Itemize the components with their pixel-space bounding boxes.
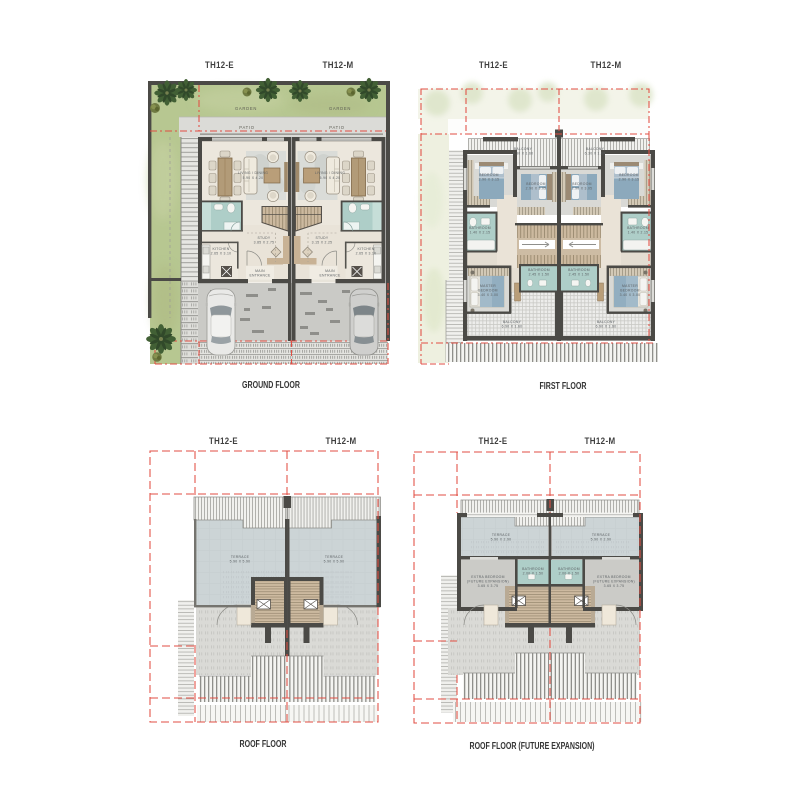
svg-text:2.45 X 1.50: 2.45 X 1.50 [569, 273, 590, 277]
svg-text:2.90 X 3.05: 2.90 X 3.05 [526, 187, 547, 191]
svg-text:TH12-M: TH12-M [585, 436, 616, 446]
svg-text:BEDROOM: BEDROOM [572, 182, 592, 186]
svg-text:LIVING / DINING: LIVING / DINING [315, 171, 345, 175]
svg-text:(FUTURE EXPANSION): (FUTURE EXPANSION) [593, 580, 635, 584]
svg-text:GARDEN: GARDEN [329, 106, 351, 111]
svg-text:1.40 X 2.15: 1.40 X 2.15 [628, 231, 649, 235]
svg-text:KITCHEN: KITCHEN [358, 247, 375, 251]
svg-text:(FUTURE EXPANSION): (FUTURE EXPANSION) [467, 580, 509, 584]
svg-text:ENTRANCE: ENTRANCE [319, 274, 340, 278]
svg-text:STUDY: STUDY [316, 236, 329, 240]
svg-text:PATIO: PATIO [329, 125, 344, 130]
svg-text:5.90 X 4.20: 5.90 X 4.20 [320, 176, 341, 180]
svg-text:MASTER: MASTER [622, 284, 638, 288]
svg-text:TERRACE: TERRACE [492, 533, 511, 537]
svg-text:GROUND FLOOR: GROUND FLOOR [242, 380, 300, 391]
svg-text:2.90 X 3.05: 2.90 X 3.05 [572, 187, 593, 191]
svg-text:GARDEN: GARDEN [235, 106, 257, 111]
svg-text:5.90 X 4.20: 5.90 X 4.20 [243, 176, 264, 180]
svg-text:BALCONY: BALCONY [597, 320, 616, 324]
svg-text:2.00 X 1.50: 2.00 X 1.50 [523, 572, 544, 576]
svg-text:BALCONY: BALCONY [586, 147, 605, 151]
svg-text:BALCONY: BALCONY [514, 147, 533, 151]
svg-text:EXTRA BEDROOM: EXTRA BEDROOM [471, 575, 504, 579]
svg-text:BEDROOM: BEDROOM [526, 182, 546, 186]
svg-text:5.90 X 5.90: 5.90 X 5.90 [324, 560, 345, 564]
svg-text:BEDROOM: BEDROOM [479, 173, 499, 177]
svg-text:5.90 X 5.90: 5.90 X 5.90 [230, 560, 251, 564]
svg-text:MAIN: MAIN [255, 269, 265, 273]
svg-text:BATHROOM: BATHROOM [528, 268, 550, 272]
svg-text:FIRST FLOOR: FIRST FLOOR [540, 381, 587, 392]
svg-text:6.30 X 1.60: 6.30 X 1.60 [585, 152, 606, 156]
svg-text:BALCONY: BALCONY [503, 320, 522, 324]
svg-text:BATHROOM: BATHROOM [627, 226, 649, 230]
svg-text:6.90 X 1.60: 6.90 X 1.60 [502, 325, 523, 329]
svg-text:TERRACE: TERRACE [325, 555, 344, 559]
svg-text:BEDROOM: BEDROOM [620, 289, 640, 293]
svg-text:BEDROOM: BEDROOM [478, 289, 498, 293]
svg-text:EXTRA BEDROOM: EXTRA BEDROOM [597, 575, 630, 579]
svg-text:TH12-E: TH12-E [205, 60, 234, 70]
svg-text:3.65 X 3.75: 3.65 X 3.75 [604, 584, 625, 588]
svg-text:BATHROOM: BATHROOM [522, 567, 544, 571]
svg-text:6.90 X 1.60: 6.90 X 1.60 [596, 325, 617, 329]
svg-text:BEDROOM: BEDROOM [619, 173, 639, 177]
svg-text:TH12-M: TH12-M [323, 60, 354, 70]
svg-text:TH12-E: TH12-E [479, 60, 508, 70]
svg-text:LIVING / DINING: LIVING / DINING [238, 171, 268, 175]
svg-text:5.90 X 2.90: 5.90 X 2.90 [491, 538, 512, 542]
svg-text:ENTRANCE: ENTRANCE [249, 274, 270, 278]
svg-text:STUDY: STUDY [258, 236, 271, 240]
svg-text:2.90 X 3.15: 2.90 X 3.15 [479, 178, 500, 182]
svg-text:TERRACE: TERRACE [592, 533, 611, 537]
svg-text:6.30 X 1.60: 6.30 X 1.60 [513, 152, 534, 156]
svg-text:3.40 X 3.00: 3.40 X 3.00 [620, 293, 641, 297]
svg-text:BATHROOM: BATHROOM [558, 567, 580, 571]
svg-text:3.40 X 3.00: 3.40 X 3.00 [478, 293, 499, 297]
svg-text:3.85 X 2.75: 3.85 X 2.75 [254, 241, 275, 245]
svg-text:2.65 X 3.10: 2.65 X 3.10 [356, 252, 377, 256]
svg-text:TERRACE: TERRACE [231, 555, 250, 559]
svg-text:BATHROOM: BATHROOM [469, 226, 491, 230]
svg-text:3.15 X 2.25: 3.15 X 2.25 [312, 241, 333, 245]
svg-text:MAIN: MAIN [325, 269, 335, 273]
svg-text:2.00 X 1.50: 2.00 X 1.50 [559, 572, 580, 576]
svg-text:TH12-E: TH12-E [209, 436, 238, 446]
svg-text:2.65 X 3.10: 2.65 X 3.10 [211, 252, 232, 256]
svg-text:5.90 X 2.90: 5.90 X 2.90 [591, 538, 612, 542]
svg-text:TH12-E: TH12-E [479, 436, 508, 446]
svg-text:3.65 X 3.75: 3.65 X 3.75 [478, 584, 499, 588]
svg-text:BATHROOM: BATHROOM [568, 268, 590, 272]
svg-text:MASTER: MASTER [480, 284, 496, 288]
svg-text:ROOF FLOOR (FUTURE EXPANSION): ROOF FLOOR (FUTURE EXPANSION) [470, 741, 595, 752]
svg-text:1.40 X 2.15: 1.40 X 2.15 [470, 231, 491, 235]
svg-text:TH12-M: TH12-M [326, 436, 357, 446]
svg-text:2.45 X 1.50: 2.45 X 1.50 [529, 273, 550, 277]
svg-text:PATIO: PATIO [239, 125, 254, 130]
svg-text:2.90 X 3.15: 2.90 X 3.15 [619, 178, 640, 182]
svg-text:TH12-M: TH12-M [591, 60, 622, 70]
svg-text:KITCHEN: KITCHEN [213, 247, 230, 251]
svg-text:ROOF FLOOR: ROOF FLOOR [240, 739, 287, 750]
